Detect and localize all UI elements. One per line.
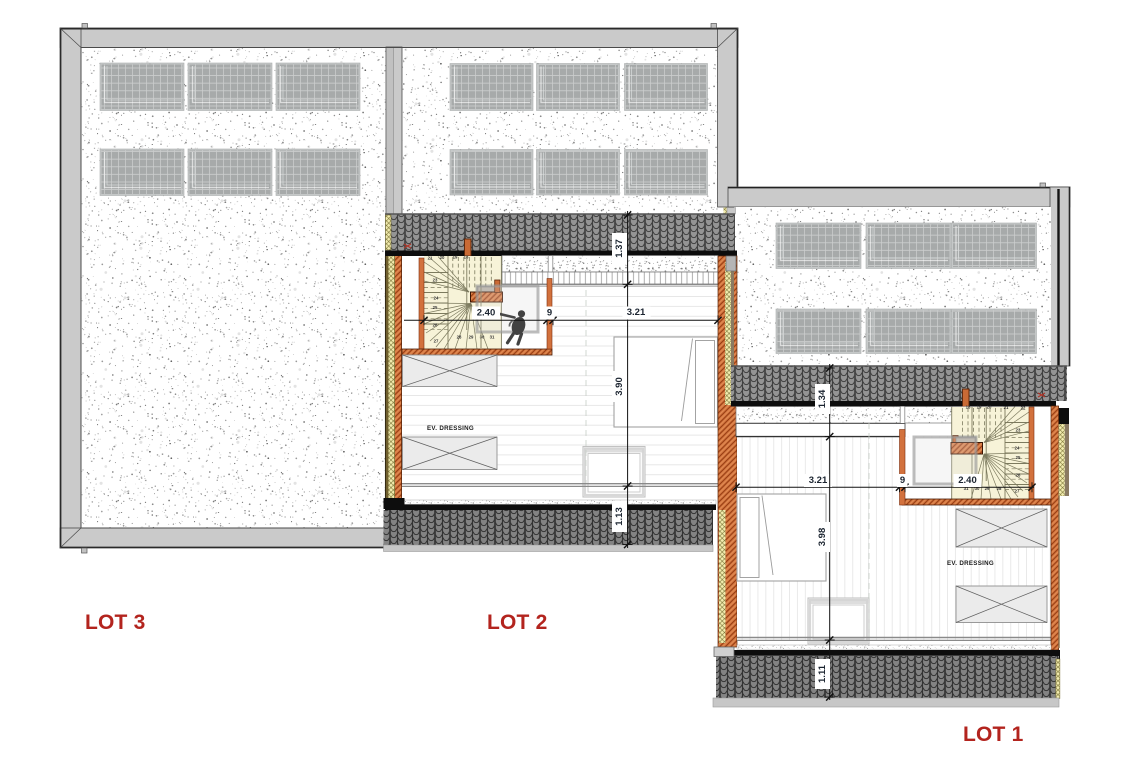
svg-text:21: 21 — [1004, 405, 1009, 410]
svg-text:23: 23 — [433, 278, 438, 283]
svg-text:25: 25 — [1016, 455, 1021, 460]
svg-text:LOT 3: LOT 3 — [85, 611, 146, 634]
svg-text:1.34: 1.34 — [817, 389, 828, 408]
svg-text:1.13: 1.13 — [614, 507, 625, 526]
svg-text:26: 26 — [433, 323, 438, 328]
svg-text:24: 24 — [1015, 446, 1020, 451]
svg-text:20: 20 — [440, 255, 445, 260]
svg-text:LOT 2: LOT 2 — [487, 611, 548, 634]
svg-text:9: 9 — [900, 475, 905, 486]
svg-text:1.11: 1.11 — [817, 664, 828, 683]
svg-text:3.21: 3.21 — [627, 307, 646, 318]
svg-text:27: 27 — [1015, 489, 1020, 494]
svg-text:EV. DRESSING: EV. DRESSING — [947, 560, 994, 567]
svg-text:23: 23 — [1016, 428, 1021, 433]
svg-text:31: 31 — [490, 335, 495, 340]
svg-text:LOT 1: LOT 1 — [963, 723, 1024, 746]
svg-text:3.21: 3.21 — [809, 475, 828, 486]
svg-text:28: 28 — [457, 335, 462, 340]
svg-text:26: 26 — [1016, 473, 1021, 478]
svg-text:20: 20 — [987, 405, 992, 410]
svg-text:21: 21 — [428, 256, 433, 261]
svg-text:18: 18 — [464, 255, 469, 260]
svg-text:2.40: 2.40 — [958, 475, 977, 486]
svg-text:3.98: 3.98 — [817, 528, 828, 547]
svg-text:19: 19 — [977, 405, 982, 410]
svg-text:19: 19 — [453, 255, 458, 260]
svg-text:EV. DRESSING: EV. DRESSING — [427, 425, 474, 432]
svg-text:22: 22 — [1021, 406, 1026, 411]
svg-text:25: 25 — [433, 305, 438, 310]
svg-text:1.37: 1.37 — [614, 239, 625, 258]
svg-text:24: 24 — [434, 296, 439, 301]
svg-text:30: 30 — [480, 335, 485, 340]
svg-text:2.40: 2.40 — [477, 308, 496, 319]
svg-text:9: 9 — [547, 308, 552, 319]
svg-text:27: 27 — [434, 339, 439, 344]
svg-text:18: 18 — [966, 405, 971, 410]
svg-text:3.90: 3.90 — [614, 377, 625, 396]
svg-text:29: 29 — [469, 335, 474, 340]
